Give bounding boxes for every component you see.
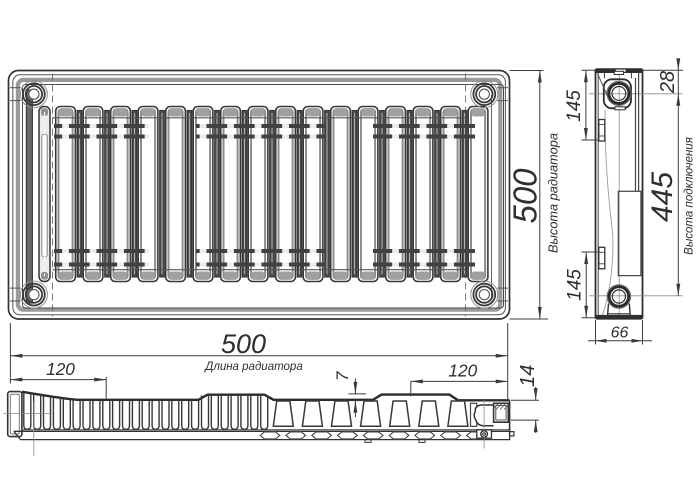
svg-text:28: 28 (657, 71, 679, 94)
svg-text:120: 120 (448, 360, 477, 380)
svg-text:500: 500 (507, 168, 544, 224)
svg-text:14: 14 (517, 365, 539, 387)
svg-text:Длина радиатора: Длина радиатора (203, 361, 302, 373)
svg-text:Высота радиатора: Высота радиатора (546, 133, 561, 253)
svg-text:145: 145 (564, 90, 585, 122)
svg-text:145: 145 (564, 269, 585, 301)
svg-text:120: 120 (46, 359, 75, 379)
svg-text:Высота подключения: Высота подключения (684, 137, 696, 255)
svg-text:445: 445 (646, 172, 679, 222)
svg-text:66: 66 (611, 325, 629, 342)
svg-text:7: 7 (333, 371, 352, 381)
svg-text:500: 500 (221, 329, 266, 359)
